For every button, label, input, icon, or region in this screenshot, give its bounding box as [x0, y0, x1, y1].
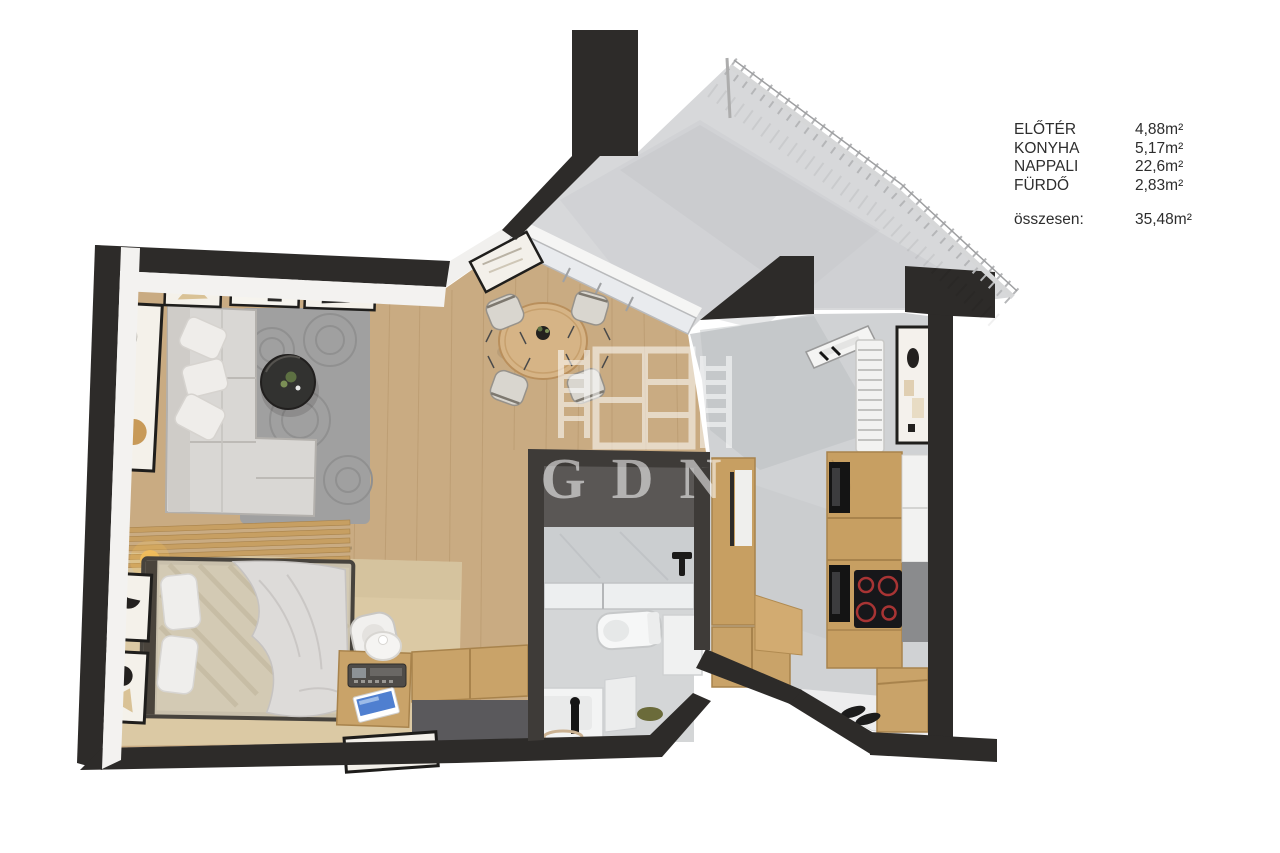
microwave	[829, 462, 850, 513]
area-legend: ELŐTÉR 4,88m² KONYHA 5,17m² NAPPALI 22,6…	[1014, 121, 1192, 230]
bed	[141, 558, 354, 720]
room-name: FÜRDŐ	[1014, 177, 1135, 196]
total-label: összesen:	[1014, 211, 1135, 230]
room-name: NAPPALI	[1014, 158, 1135, 177]
table-plant	[286, 372, 297, 383]
room-area: 2,83m²	[1135, 177, 1183, 196]
kitchen-radiator	[856, 340, 884, 452]
floorplan-render: GDN ELŐTÉR 4,88m² KONYHA 5,17m² NAPPALI …	[0, 0, 1280, 853]
toilet	[596, 610, 662, 650]
room-area: 4,88m²	[1135, 121, 1183, 140]
legend-total-row: összesen: 35,48m²	[1014, 211, 1192, 230]
bath-partition	[605, 676, 636, 732]
watermark-text: GDN	[541, 446, 748, 511]
bath-plant	[637, 707, 663, 721]
room-name: KONYHA	[1014, 140, 1135, 159]
oven	[829, 565, 850, 622]
room-area: 5,17m²	[1135, 140, 1183, 159]
tall-cabinet-gray	[902, 562, 928, 642]
shower-glass	[544, 583, 694, 609]
legend-row-konyha: KONYHA 5,17m²	[1014, 140, 1192, 159]
legend-row-furdo: FÜRDŐ 2,83m²	[1014, 177, 1192, 196]
kitchen-art-frame	[897, 327, 930, 443]
entry-bench-box	[877, 668, 928, 732]
radio	[348, 664, 406, 687]
total-area: 35,48m²	[1135, 211, 1192, 230]
room-name: ELŐTÉR	[1014, 121, 1135, 140]
kitchen-cabinets	[827, 452, 928, 668]
legend-row-nappali: NAPPALI 22,6m²	[1014, 158, 1192, 177]
cooktop	[854, 570, 902, 628]
legend-row-eloter: ELŐTÉR 4,88m²	[1014, 121, 1192, 140]
room-area: 22,6m²	[1135, 158, 1183, 177]
